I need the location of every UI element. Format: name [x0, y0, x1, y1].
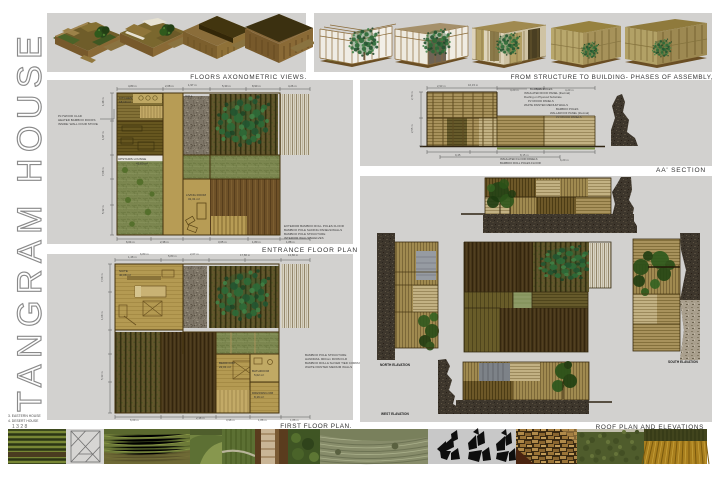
svg-text:2,07 m: 2,07 m — [190, 252, 199, 256]
svg-text:ENTRANCE FLOOR PLAN: ENTRANCE FLOOR PLAN — [262, 247, 358, 254]
svg-text:INSIDE: WALL FOUR STOVE: INSIDE: WALL FOUR STOVE — [58, 122, 98, 126]
svg-text:4. DESERT HOUSE: 4. DESERT HOUSE — [8, 419, 39, 423]
svg-text:40,08 m²: 40,08 m² — [119, 273, 131, 277]
svg-text:31,31 m²: 31,31 m² — [188, 197, 200, 201]
svg-text:NORTH ELAVATION: NORTH ELAVATION — [380, 363, 411, 367]
svg-text:1,88 m: 1,88 m — [286, 240, 295, 244]
svg-text:5,80 m: 5,80 m — [168, 254, 177, 258]
svg-text:1,97 m: 1,97 m — [188, 83, 197, 87]
svg-text:3,98 m: 3,98 m — [226, 418, 235, 422]
svg-text:7,08 m: 7,08 m — [101, 167, 105, 176]
svg-text:UPSTAIRS LOUNGE: UPSTAIRS LOUNGE — [118, 157, 146, 161]
svg-text:1,48 m: 1,48 m — [101, 97, 105, 106]
svg-text:3. EASTERN HOUSE: 3. EASTERN HOUSE — [8, 414, 42, 418]
svg-text:2,93 m: 2,93 m — [437, 84, 446, 88]
svg-text:8,90 m: 8,90 m — [252, 84, 261, 88]
svg-text:2,70 m: 2,70 m — [410, 91, 414, 100]
svg-text:INTERIOR WALLS/SHELVES: INTERIOR WALLS/SHELVES — [284, 236, 324, 240]
svg-text:2,38 m: 2,38 m — [196, 416, 205, 420]
svg-text:5,32 m: 5,32 m — [101, 205, 105, 214]
svg-text:1,08 m: 1,08 m — [100, 311, 104, 320]
svg-text:SOUTH ELAVATION: SOUTH ELAVATION — [668, 360, 698, 364]
svg-text:4,80 m: 4,80 m — [128, 84, 137, 88]
svg-text:5,30 m: 5,30 m — [222, 84, 231, 88]
svg-text:5,02 m²: 5,02 m² — [254, 373, 264, 377]
svg-text:6,04 m: 6,04 m — [126, 240, 135, 244]
svg-text:8,16 m²: 8,16 m² — [254, 395, 264, 399]
svg-text:WHITE PAINTED MEDIUM WALLS: WHITE PAINTED MEDIUM WALLS — [305, 365, 352, 369]
svg-text:18,19 m²: 18,19 m² — [119, 100, 131, 104]
svg-text:FIRST FLOOR PLAN.: FIRST FLOOR PLAN. — [280, 423, 352, 430]
svg-text:1,48 m: 1,48 m — [128, 255, 137, 259]
svg-text:FLOORS AXONOMETRIC VIEWS.: FLOORS AXONOMETRIC VIEWS. — [190, 74, 307, 81]
svg-text:1,80 m: 1,80 m — [252, 240, 261, 244]
svg-text:6,20 m: 6,20 m — [560, 158, 569, 162]
svg-text:2,38 m: 2,38 m — [160, 240, 169, 244]
svg-text:1,88 m: 1,88 m — [290, 418, 299, 422]
svg-text:9,45: 9,45 — [455, 153, 461, 157]
svg-text:6,80 m: 6,80 m — [140, 252, 149, 256]
svg-text:5,33 m: 5,33 m — [100, 371, 104, 380]
svg-text:AA' SECTION: AA' SECTION — [656, 167, 706, 174]
svg-text:3,05 m: 3,05 m — [218, 240, 227, 244]
svg-text:HALL: HALL — [185, 94, 193, 98]
svg-text:TANGRAM HOUSE: TANGRAM HOUSE — [11, 30, 49, 412]
svg-text:41,80 m²: 41,80 m² — [136, 162, 148, 166]
svg-text:16,15 m: 16,15 m — [468, 83, 479, 87]
svg-text:22,01 m²: 22,01 m² — [219, 365, 231, 369]
svg-text:7,08 m: 7,08 m — [100, 273, 104, 282]
svg-text:PLYWOOD PANELS: PLYWOOD PANELS — [556, 115, 582, 119]
svg-text:FROM STRUCTURE TO BUILDING- PH: FROM STRUCTURE TO BUILDING- PHASES OF AS… — [511, 74, 713, 81]
svg-text:BAMBOO ROLL POLES FLOOR: BAMBOO ROLL POLES FLOOR — [500, 161, 541, 165]
svg-text:4,20 m: 4,20 m — [510, 88, 519, 92]
svg-text:6,09 m: 6,09 m — [130, 418, 139, 422]
svg-text:17,86 m: 17,86 m — [240, 253, 251, 257]
svg-text:2,55 m: 2,55 m — [410, 124, 414, 133]
svg-text:2,08 m: 2,08 m — [165, 84, 174, 88]
svg-text:WEST ELAVATION: WEST ELAVATION — [381, 412, 409, 416]
svg-text:4,26 m: 4,26 m — [288, 84, 297, 88]
svg-text:1,97 m: 1,97 m — [101, 131, 105, 140]
svg-text:1,88 m: 1,88 m — [258, 418, 267, 422]
